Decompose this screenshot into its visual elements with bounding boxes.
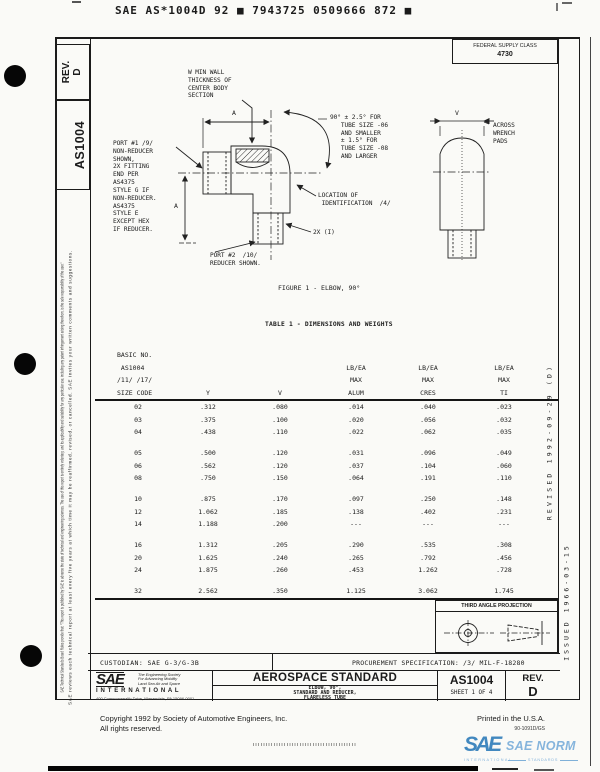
dim-a-left-label: A (174, 202, 178, 210)
table-cell: .260 (235, 566, 325, 574)
federal-supply-class-label: FEDERAL SUPPLY CLASS (453, 43, 557, 49)
table-group-gap (95, 485, 558, 494)
table-cell: 1.062 (181, 508, 235, 516)
across-wrench-pads-note: ACROSS WRENCH PADS (493, 122, 515, 145)
table-cell: .500 (181, 449, 235, 457)
table-cell: .110 (469, 474, 539, 482)
procurement-spec-text: PROCUREMENT SPECIFICATION: /3/ MIL-F-182… (352, 659, 525, 667)
rev-box-text: REV. D (61, 61, 83, 83)
document-title: ELBOW, 90°, STANDARD AND REDUCER, FLAREL… (213, 686, 437, 702)
table-cell: .049 (469, 449, 539, 457)
table-cell: 06 (95, 462, 181, 470)
dim-a-top-label: A (232, 109, 236, 117)
table-cell: 3.062 (387, 587, 469, 595)
table-cell: .056 (387, 416, 469, 424)
table-cell: .312 (181, 403, 235, 411)
print-code: 90-1091D/GS (455, 726, 545, 732)
table-cell: .064 (325, 474, 387, 482)
table-cell: 10 (95, 495, 181, 503)
table-cell: .438 (181, 428, 235, 436)
table-cell: .148 (469, 495, 539, 503)
sae-norm-standards-row: STANDARDS (506, 758, 580, 762)
table-cell: .200 (235, 520, 325, 528)
scan-mark (562, 2, 572, 4)
elbow-figure-drawing (90, 58, 570, 318)
table-cell: 1.188 (181, 520, 235, 528)
dim-v-label: V (455, 109, 459, 117)
table-cell: .022 (325, 428, 387, 436)
table-cell: .096 (387, 449, 469, 457)
table-cell: 1.262 (387, 566, 469, 574)
table-cell: 02 (95, 403, 181, 411)
frame-right (579, 37, 581, 700)
table-cell: .205 (235, 541, 325, 549)
barcode-header-line: SAE AS*1004D 92 ■ 7943725 0509666 872 ■ (115, 4, 412, 17)
third-angle-projection-box: THIRD ANGLE PROJECTION (435, 600, 558, 653)
table-header-y: Y (181, 387, 235, 400)
table-cell: 03 (95, 416, 181, 424)
table-cell: .290 (325, 541, 387, 549)
two-x-note: 2X (I) (313, 229, 335, 237)
doc-number-box: AS1004 (55, 100, 90, 190)
table-cell: .240 (235, 554, 325, 562)
sheet-number: SHEET 1 OF 4 (438, 690, 505, 696)
table-cell: .031 (325, 449, 387, 457)
table-cell: .350 (235, 587, 325, 595)
table-cell: .020 (325, 416, 387, 424)
table-cell: .060 (469, 462, 539, 470)
table-group-gap (95, 439, 558, 448)
table-cell: 32 (95, 587, 181, 595)
table-cell: .453 (325, 566, 387, 574)
table-header-v: V (235, 387, 325, 400)
table-cell: .062 (387, 428, 469, 436)
table-row: 06.562.120.037.104.060 (95, 460, 558, 473)
table-cell: 1.125 (325, 587, 387, 595)
table-cell: .120 (235, 462, 325, 470)
scan-mark (72, 1, 81, 3)
sae-logo: SAE (96, 672, 124, 687)
table-row: 241.875.260.4531.262.728 (95, 564, 558, 577)
table-cell: .191 (387, 474, 469, 482)
table-cell: .750 (181, 474, 235, 482)
angle-tolerance-note: 90° ± 2.5° FOR TUBE SIZE -06 AND SMALLER… (330, 114, 388, 161)
table-cell: .014 (325, 403, 387, 411)
table-cell: --- (469, 520, 539, 528)
aerospace-standard-heading: AEROSPACE STANDARD (213, 671, 437, 686)
custodian-row: CUSTODIAN: SAE G-3/G-3B PROCUREMENT SPEC… (88, 653, 560, 670)
table-cell: .023 (469, 403, 539, 411)
table-cell: 20 (95, 554, 181, 562)
table-header-size-code: BASIC NO. AS1004 /11/ /17/ SIZE CODE (95, 349, 181, 399)
table-cell: 1.745 (469, 587, 539, 595)
table-row: 10.875.170.097.250.148 (95, 493, 558, 506)
punch-hole (20, 645, 42, 667)
table-cell: 04 (95, 428, 181, 436)
sae-norm-standards: STANDARDS (528, 758, 558, 762)
sae-logo-tagline: The Engineering Society For Advancing Mo… (138, 673, 180, 686)
table-row: 04.438.110.022.062.035 (95, 426, 558, 439)
custodian-divider (272, 654, 273, 671)
table-cell: .250 (387, 495, 469, 503)
table-cell: 1.875 (181, 566, 235, 574)
sae-international-label: I N T E R N A T I O N A L (96, 688, 179, 694)
table-cell: .035 (469, 428, 539, 436)
table-cell: .728 (469, 566, 539, 574)
sae-norm-wordmark: SAE NORM (506, 739, 576, 753)
punch-hole (14, 353, 36, 375)
table-cell: 2.562 (181, 587, 235, 595)
rev-value: D (506, 684, 560, 699)
punch-hole (4, 65, 26, 87)
table-cell: .032 (469, 416, 539, 424)
port2-note: PORT #2 /10/ REDUCER SHOWN. (210, 252, 261, 268)
table-row: 02.312.080.014.040.023 (95, 401, 558, 414)
table-cell: 12 (95, 508, 181, 516)
identification-location-note: LOCATION OF IDENTIFICATION /4/ (318, 192, 391, 208)
table-header-ti: LB/EA MAX TI (469, 362, 539, 400)
table-cell: .375 (181, 416, 235, 424)
port1-note: PORT #1 /9/ NON-REDUCER SHOWN, 2X FITTIN… (113, 140, 157, 234)
table-cell: .231 (469, 508, 539, 516)
table-cell: .040 (387, 403, 469, 411)
table-cell: .456 (469, 554, 539, 562)
table-cell: 24 (95, 566, 181, 574)
scanned-document-page: SAE AS*1004D 92 ■ 7943725 0509666 872 ■ … (0, 0, 600, 772)
legal-disclaimer-2: SAE reviews each technical report at lea… (66, 258, 75, 698)
printed-in-usa: Printed in the U.S.A. (430, 714, 545, 723)
microprint-line (253, 743, 357, 746)
table-cell: --- (387, 520, 469, 528)
table-cell: --- (325, 520, 387, 528)
issued-date-vertical: ISSUED 1966-03-15 (562, 540, 572, 665)
scan-mark (492, 768, 518, 770)
table-row: 05.500.120.031.096.049 (95, 447, 558, 460)
table-row: 141.188.200--------- (95, 518, 558, 531)
scan-mark (556, 3, 558, 11)
table-row: 03.375.100.020.056.032 (95, 414, 558, 427)
custodian-text: CUSTODIAN: SAE G-3/G-3B (100, 659, 199, 667)
table-cell: .185 (235, 508, 325, 516)
table-cell: .120 (235, 449, 325, 457)
table-cell: .104 (387, 462, 469, 470)
table-cell: .875 (181, 495, 235, 503)
scan-mark (534, 769, 554, 771)
scan-bottom-bar (48, 766, 478, 771)
table-rows: 02.312.080.014.040.02303.375.100.020.056… (95, 401, 558, 598)
sae-norm-logo: SAE SAE NORM INTERNATIONAL STANDARDS (450, 733, 585, 767)
table-row: 201.625.240.265.792.456 (95, 552, 558, 565)
table-title: TABLE 1 - DIMENSIONS AND WEIGHTS (265, 321, 393, 328)
table-cell: .110 (235, 428, 325, 436)
table-header-cres: LB/EA MAX CRES (387, 362, 469, 400)
table-cell: .265 (325, 554, 387, 562)
document-number: AS1004 (438, 673, 505, 687)
table-cell: .138 (325, 508, 387, 516)
table-row: 161.312.205.290.535.308 (95, 539, 558, 552)
table-cell: .150 (235, 474, 325, 482)
table-cell: .308 (469, 541, 539, 549)
copyright-line-2: All rights reserved. (100, 724, 162, 733)
sae-norm-sae-mark: SAE (464, 733, 500, 757)
table-cell: .535 (387, 541, 469, 549)
table-cell: 1.625 (181, 554, 235, 562)
table-row: 121.062.185.138.402.231 (95, 506, 558, 519)
doc-number-vertical: AS1004 (73, 121, 87, 169)
copyright-line-1: Copyright 1992 by Society of Automotive … (100, 714, 287, 723)
wall-thickness-note: W MIN WALL THICKNESS OF CENTER BODY SECT… (188, 69, 232, 100)
table-cell: .037 (325, 462, 387, 470)
table-header-row: BASIC NO. AS1004 /11/ /17/ SIZE CODE Y V… (95, 346, 558, 399)
table-row: 08.750.150.064.191.110 (95, 472, 558, 485)
table-cell: 05 (95, 449, 181, 457)
table-cell: .562 (181, 462, 235, 470)
table-cell: 14 (95, 520, 181, 528)
table-header-alum: LB/EA MAX ALUM (325, 362, 387, 400)
dimensions-table: BASIC NO. AS1004 /11/ /17/ SIZE CODE Y V… (95, 346, 558, 600)
table-group-gap (95, 577, 558, 586)
scan-edge-line (590, 37, 591, 766)
table-row: 322.562.3501.1253.0621.745 (95, 585, 558, 598)
table-cell: .402 (387, 508, 469, 516)
table-cell: .170 (235, 495, 325, 503)
table-cell: .080 (235, 403, 325, 411)
rev-label: REV. (506, 673, 560, 684)
table-group-gap (95, 531, 558, 540)
rev-box: REV. D (55, 44, 90, 100)
sae-address: 400 Commonwealth Drive, Warrendale, PA 1… (96, 696, 194, 701)
third-angle-projection-title: THIRD ANGLE PROJECTION (436, 601, 557, 612)
federal-supply-class-value: 4730 (453, 51, 557, 58)
table-cell: 16 (95, 541, 181, 549)
table-cell: .792 (387, 554, 469, 562)
figure-caption: FIGURE 1 - ELBOW, 90° (278, 284, 360, 292)
table-cell: 08 (95, 474, 181, 482)
table-cell: .100 (235, 416, 325, 424)
third-angle-projection-symbol (436, 613, 557, 653)
table-cell: .097 (325, 495, 387, 503)
title-block: SAE The Engineering Society For Advancin… (88, 670, 560, 700)
table-cell: 1.312 (181, 541, 235, 549)
